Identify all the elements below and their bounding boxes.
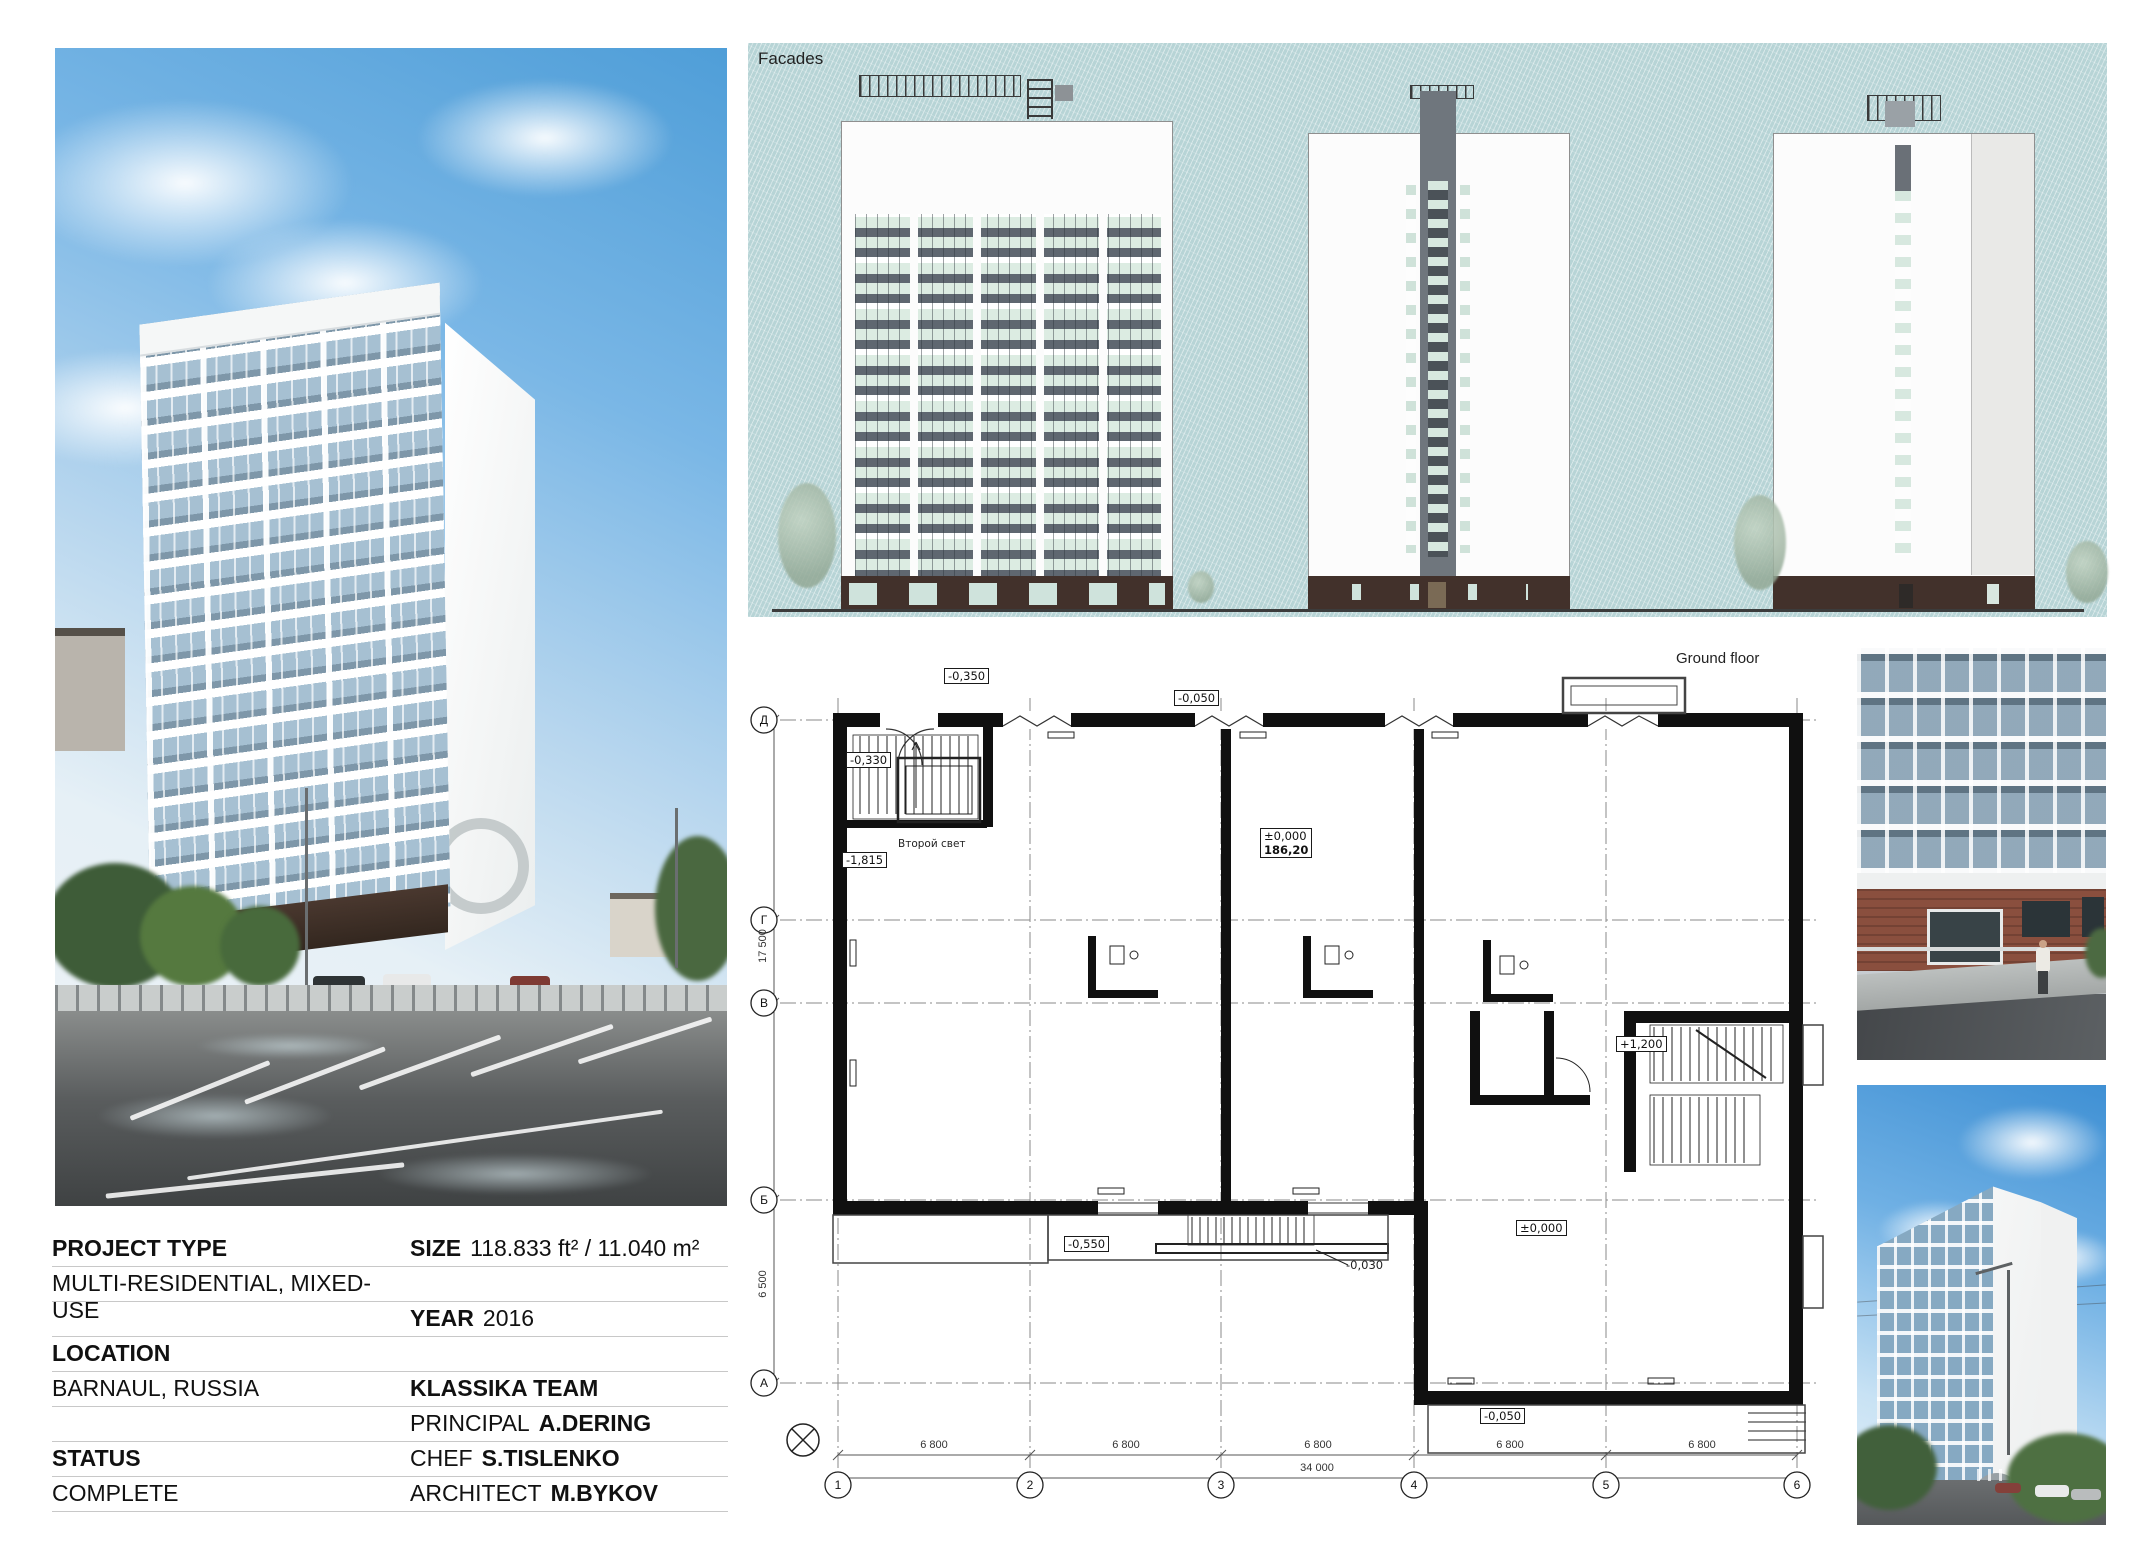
window <box>2022 901 2070 937</box>
info-row: PROJECT TYPE SIZE118.833 ft² / 11.040 m² <box>52 1232 728 1267</box>
roof-equipment <box>1885 101 1915 127</box>
chef-field: CHEFS.TISLENKO <box>410 1445 728 1472</box>
location-value: BARNAUL, RUSSIA <box>52 1375 410 1402</box>
project-type-label: PROJECT TYPE <box>52 1235 410 1262</box>
bay-dimension: 6 800 <box>904 1439 964 1451</box>
grid-bubble-label: 4 <box>1401 1478 1427 1492</box>
storefront-windows <box>849 583 1165 605</box>
info-row: PRINCIPALA.DERING <box>52 1407 728 1442</box>
elevation-side-a <box>1308 85 1570 613</box>
size-label: SIZE <box>410 1235 461 1262</box>
vertical-dimension: 17 500 <box>757 911 769 981</box>
tower-view-photo <box>1857 1085 2106 1525</box>
facades-panel: Facades Досуговый центр жилого комплекса… <box>748 43 2107 617</box>
project-info: PROJECT TYPE SIZE118.833 ft² / 11.040 m²… <box>52 1232 728 1512</box>
walls <box>833 713 1803 1405</box>
grid-bubble-label: 6 <box>1784 1478 1810 1492</box>
plan-title: Ground floor <box>1676 650 1759 667</box>
team-name: KLASSIKA TEAM <box>410 1375 728 1402</box>
base-door <box>1428 582 1446 608</box>
year-label: YEAR <box>410 1305 474 1332</box>
main-render-photo <box>55 48 727 1206</box>
info-row: MULTI-RESIDENTIAL, MIXED-USE <box>52 1267 728 1302</box>
cloud <box>1957 1105 2106 1180</box>
base-window <box>1987 584 1999 604</box>
pedestrian-torso <box>2036 948 2050 972</box>
level-mark: ±0,000 <box>1516 1220 1567 1236</box>
level-area: 186,20 <box>1264 843 1308 857</box>
info-row: COMPLETE ARCHITECTM.BYKOV <box>52 1477 728 1512</box>
plan-linework <box>748 640 1868 1535</box>
info-row: STATUS CHEFS.TISLENKO <box>52 1442 728 1477</box>
roof-equipment <box>1055 85 1073 101</box>
elevation-side-a-base <box>1308 576 1570 611</box>
light-pole <box>2007 1270 2010 1455</box>
grid-bubble-label: Д <box>751 713 777 727</box>
white-band <box>1857 873 2106 889</box>
elevation-side-b-base <box>1773 576 2035 611</box>
window-grid <box>855 214 1161 586</box>
info-row: LOCATION <box>52 1337 728 1372</box>
bay-dimension: 6 800 <box>1096 1439 1156 1451</box>
grid-bubble-label: В <box>751 996 777 1010</box>
tree <box>2066 541 2108 603</box>
level-mark: -0,050 <box>1174 690 1219 706</box>
facades-panel-title: Facades <box>758 49 823 69</box>
level-mark: -0,350 <box>944 668 989 684</box>
grid-bubble-label: 3 <box>1208 1478 1234 1492</box>
vertical-dimension: 6 500 <box>757 1249 769 1319</box>
grid-bubble-label: А <box>751 1376 777 1390</box>
core-top <box>1895 145 1911 191</box>
level-mark: +1,200 <box>1616 1036 1667 1052</box>
elevation-front: Досуговый центр жилого комплекса "Локомо… <box>841 73 1173 613</box>
level-zero: ±0,000 <box>1264 829 1308 843</box>
elevation-front-base <box>841 576 1173 611</box>
railing <box>1857 947 2106 951</box>
stairs <box>853 735 1806 1440</box>
tree <box>220 906 300 986</box>
car <box>1995 1483 2021 1493</box>
level-mark-main: ±0,000 186,20 <box>1260 828 1312 858</box>
level-mark: -0,550 <box>1064 1236 1109 1252</box>
status-label: STATUS <box>52 1445 410 1472</box>
level-mark: -0,330 <box>846 752 891 768</box>
architect-field: ARCHITECTM.BYKOV <box>410 1480 728 1507</box>
ground-floor-plan: Ground floor -0,350 -0,050 -0,330 -1,815… <box>748 640 1868 1535</box>
flank-windows <box>1460 185 1470 553</box>
grid-bubble-label: Б <box>751 1193 777 1207</box>
glazed-facade <box>1857 648 2106 873</box>
chef-role: CHEF <box>410 1445 473 1472</box>
total-dimension: 34 000 <box>1282 1462 1352 1474</box>
car <box>2035 1485 2069 1497</box>
street-entrance-photo <box>1857 648 2106 1060</box>
puddle <box>195 1033 385 1059</box>
grid-bubble-label: 1 <box>825 1478 851 1492</box>
base-door <box>1899 584 1913 608</box>
size-field: SIZE118.833 ft² / 11.040 m² <box>410 1235 728 1262</box>
architect-role: ARCHITECT <box>410 1480 542 1507</box>
porches <box>833 678 1823 1453</box>
year-value: 2016 <box>483 1305 534 1332</box>
principal-field: PRINCIPALA.DERING <box>410 1410 728 1437</box>
year-field: YEAR2016 <box>410 1305 728 1332</box>
tree <box>1734 495 1786 590</box>
flank-windows <box>1406 185 1416 553</box>
roof-ladder <box>1027 79 1053 119</box>
project-type-value: MULTI-RESIDENTIAL, MIXED-USE <box>52 1270 410 1324</box>
principal-name: A.DERING <box>539 1410 651 1437</box>
status-value: COMPLETE <box>52 1480 410 1507</box>
cloud <box>415 78 675 198</box>
level-mark: -0,050 <box>1480 1408 1525 1424</box>
light-pole <box>305 788 308 988</box>
core-windows <box>1428 181 1448 557</box>
north-arrow-icon <box>787 1424 819 1456</box>
roof-railing <box>859 75 1021 97</box>
pedestrian-head <box>2039 940 2047 948</box>
level-mark: -1,815 <box>842 852 887 868</box>
grid-bubble-label: 2 <box>1017 1478 1043 1492</box>
grid-bubble-label: 5 <box>1593 1478 1619 1492</box>
level-mark: -0,030 <box>1346 1258 1383 1272</box>
bush <box>1188 571 1214 603</box>
principal-role: PRINCIPAL <box>410 1410 530 1437</box>
architect-name: M.BYKOV <box>551 1480 658 1507</box>
elevation-side-b <box>1773 85 2035 613</box>
pedestrian <box>2035 940 2051 994</box>
tree <box>655 836 727 981</box>
pedestrian-legs <box>2038 971 2048 994</box>
building-front-facade <box>140 283 451 949</box>
info-row: BARNAUL, RUSSIA KLASSIKA TEAM <box>52 1372 728 1407</box>
portfolio-sheet: Facades Досуговый центр жилого комплекса… <box>0 0 2153 1559</box>
core-windows <box>1895 191 1911 555</box>
location-label: LOCATION <box>52 1340 410 1367</box>
shaded-wing <box>1971 134 2034 575</box>
ground-line <box>772 609 2084 612</box>
car <box>2071 1489 2101 1500</box>
bay-dimension: 6 800 <box>1480 1439 1540 1451</box>
bay-dimension: 6 800 <box>1288 1439 1348 1451</box>
tree <box>778 483 836 588</box>
brick-base <box>1857 889 2106 971</box>
wall-openings <box>880 711 1658 1215</box>
size-value: 118.833 ft² / 11.040 m² <box>470 1235 699 1262</box>
chef-name: S.TISLENKO <box>482 1445 620 1472</box>
entrance-glazing <box>1927 909 2003 965</box>
room-label: Второй свет <box>898 838 966 850</box>
background-building <box>55 628 125 751</box>
elevation-front-body: Досуговый центр жилого комплекса "Локомо… <box>841 121 1173 578</box>
puddle <box>375 1153 655 1195</box>
light-pole <box>675 808 678 968</box>
bay-dimension: 6 800 <box>1672 1439 1732 1451</box>
